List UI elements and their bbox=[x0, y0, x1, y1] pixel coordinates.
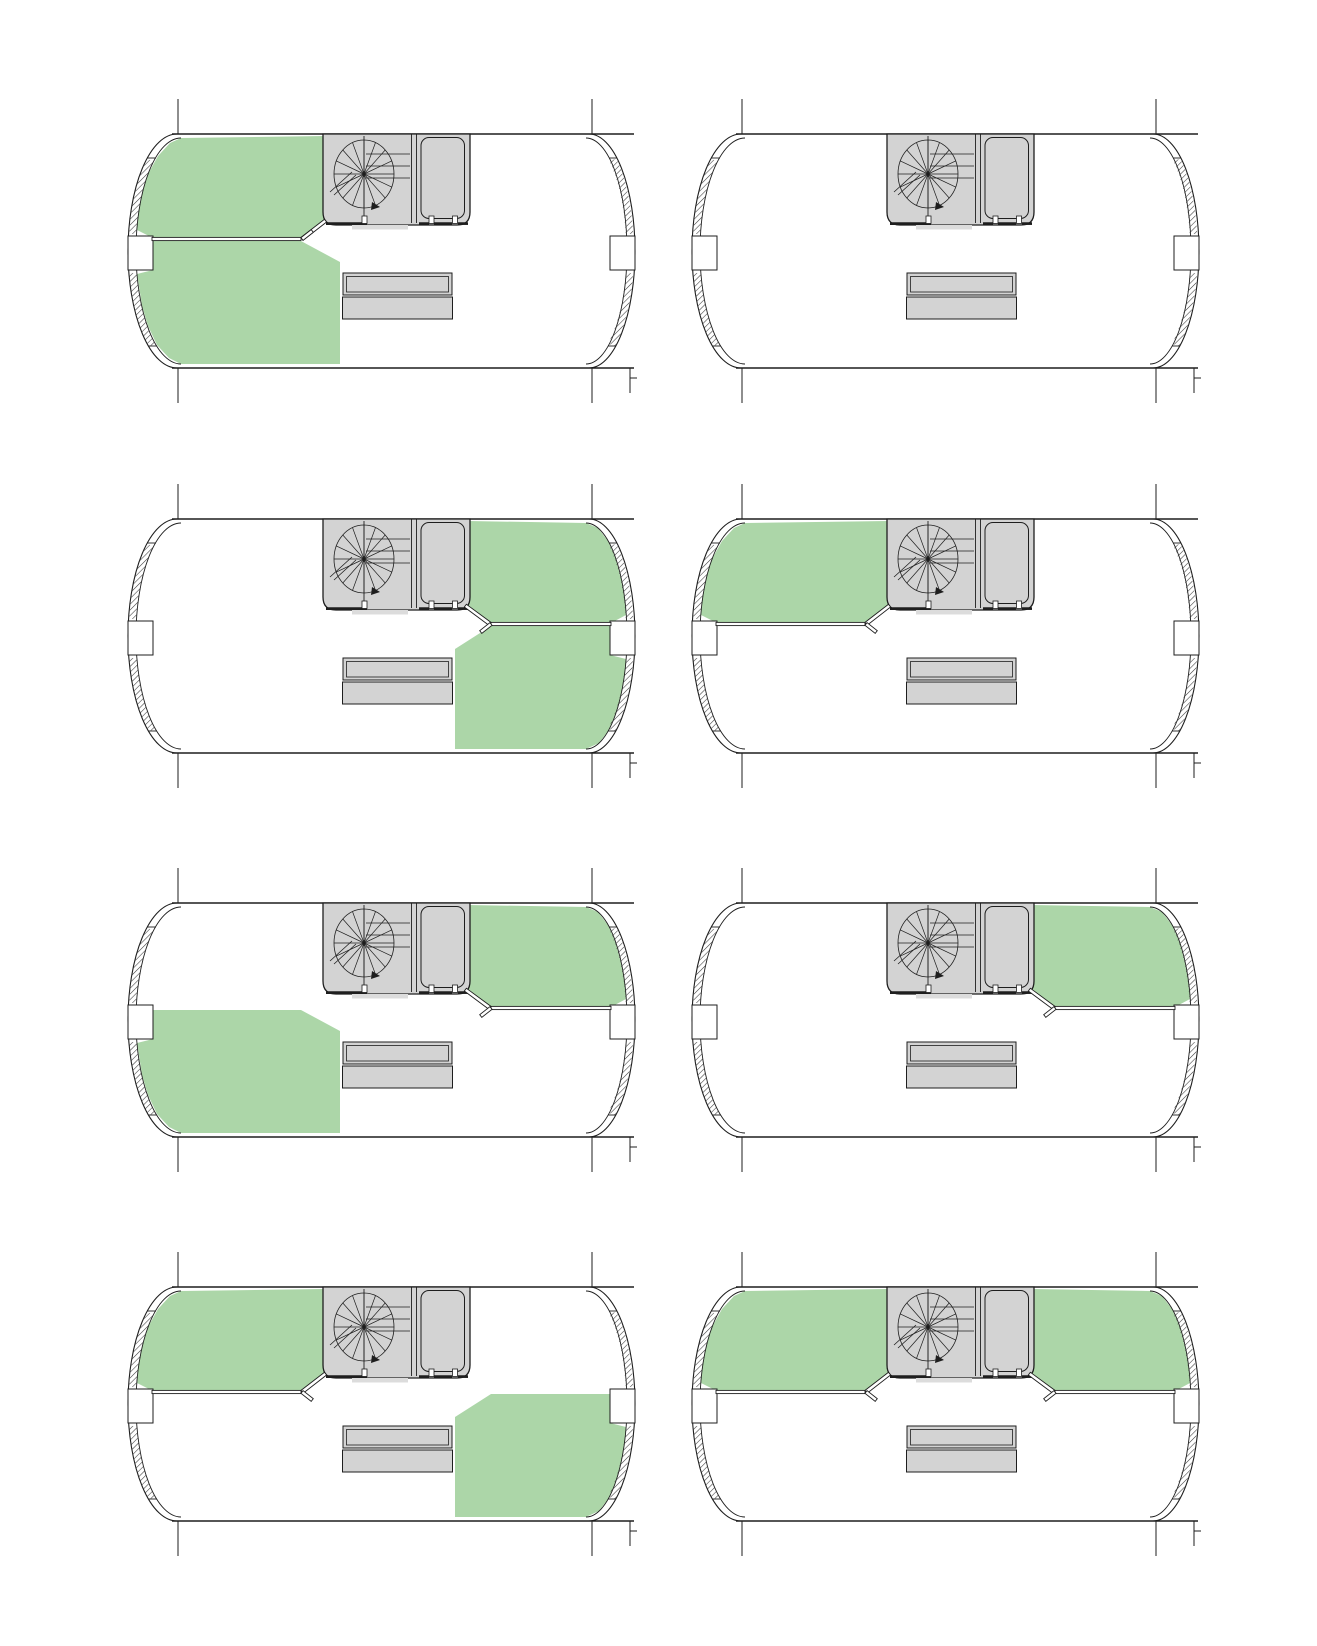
end-wall-panel-left bbox=[692, 236, 717, 270]
floor-plan-sheet bbox=[0, 0, 1317, 1646]
door-leaf-left bbox=[301, 1391, 313, 1402]
door-leaf-right bbox=[480, 1007, 492, 1018]
partition-wall-left bbox=[152, 237, 301, 240]
partition-wall-right bbox=[1055, 1390, 1175, 1393]
door-jamb bbox=[1017, 1369, 1022, 1377]
plans-canvas bbox=[0, 0, 1317, 1646]
highlight-zone-upper-left bbox=[701, 521, 888, 623]
end-wall-panel-right bbox=[1174, 1005, 1199, 1039]
door-jamb bbox=[362, 216, 367, 224]
window-hatch-band bbox=[613, 160, 630, 234]
highlight-zone-upper-right bbox=[1032, 1289, 1190, 1391]
floor-plan-4 bbox=[692, 484, 1201, 788]
end-wall-panel-right bbox=[1174, 621, 1199, 655]
end-wall-panel-left bbox=[128, 621, 153, 655]
table-lower bbox=[907, 1450, 1017, 1472]
door-jamb bbox=[362, 985, 367, 993]
door-jamb bbox=[1017, 216, 1022, 224]
highlight-zone-lower-left bbox=[137, 1010, 340, 1133]
table-lower bbox=[343, 1066, 453, 1088]
door-leaf-right bbox=[1044, 1391, 1056, 1402]
floor-plan-7 bbox=[128, 1252, 637, 1556]
partition-wall-right bbox=[1055, 1006, 1175, 1009]
door-jamb bbox=[993, 601, 998, 609]
door-jamb bbox=[453, 985, 458, 993]
end-wall-panel-left bbox=[692, 1005, 717, 1039]
stair-landing bbox=[352, 994, 408, 999]
window-hatch-band bbox=[612, 273, 630, 345]
table-lower bbox=[907, 1066, 1017, 1088]
end-wall-panel-right bbox=[1174, 236, 1199, 270]
door-jamb bbox=[993, 216, 998, 224]
end-wall-panel-left bbox=[128, 236, 153, 270]
end-wall-panel-left bbox=[692, 1389, 717, 1423]
end-wall-panel-left bbox=[128, 1389, 153, 1423]
door-jamb bbox=[429, 601, 434, 609]
door-jamb bbox=[362, 601, 367, 609]
door-leaf-left bbox=[865, 1391, 877, 1402]
end-wall-panel-right bbox=[610, 1005, 635, 1039]
highlight-zone-upper-right bbox=[1032, 905, 1190, 1007]
end-wall-panel-left bbox=[128, 1005, 153, 1039]
floor-plan-5 bbox=[128, 868, 637, 1172]
door-jamb bbox=[993, 985, 998, 993]
table-lower bbox=[343, 682, 453, 704]
window-hatch-band bbox=[1176, 273, 1194, 345]
door-jamb bbox=[926, 216, 931, 224]
door-jamb bbox=[926, 985, 931, 993]
highlight-zone-upper-right bbox=[468, 521, 626, 623]
end-wall-panel-right bbox=[610, 1389, 635, 1423]
end-wall-panel-right bbox=[1174, 1389, 1199, 1423]
door-leaf-left bbox=[865, 623, 877, 634]
door-jamb bbox=[429, 216, 434, 224]
floor-plan-6 bbox=[692, 868, 1201, 1172]
door-jamb bbox=[429, 985, 434, 993]
door-jamb bbox=[453, 216, 458, 224]
stair-landing bbox=[916, 994, 972, 999]
highlight-zone-lower-left bbox=[137, 241, 340, 364]
stair-landing bbox=[916, 1378, 972, 1383]
door-jamb bbox=[362, 1369, 367, 1377]
window-hatch-band bbox=[613, 1313, 630, 1387]
highlight-zone-upper-left bbox=[701, 1289, 888, 1391]
window-hatch-band bbox=[1176, 1426, 1194, 1498]
partition-wall-left bbox=[716, 622, 865, 625]
door-jamb bbox=[926, 1369, 931, 1377]
window-hatch-band bbox=[1177, 160, 1194, 234]
highlight-zone-lower-right bbox=[455, 1394, 626, 1517]
door-jamb bbox=[429, 1369, 434, 1377]
table-lower bbox=[907, 682, 1017, 704]
door-leaf-right bbox=[1044, 1007, 1056, 1018]
floor-plan-8 bbox=[692, 1252, 1201, 1556]
table-lower bbox=[343, 1450, 453, 1472]
partition-wall-left bbox=[152, 1390, 301, 1393]
highlight-zone-upper-right bbox=[468, 905, 626, 1007]
door-jamb bbox=[1017, 601, 1022, 609]
highlight-zone-upper-left bbox=[137, 1289, 324, 1391]
partition-wall-right bbox=[491, 622, 611, 625]
window-hatch-band bbox=[1177, 545, 1194, 619]
window-hatch-band bbox=[1176, 658, 1194, 730]
window-hatch-band bbox=[1176, 1042, 1194, 1114]
floor-plan-1 bbox=[128, 99, 637, 403]
door-jamb bbox=[926, 601, 931, 609]
highlight-zone-upper-left bbox=[137, 136, 324, 238]
end-wall-panel-right bbox=[610, 621, 635, 655]
partition-wall-left bbox=[716, 1390, 865, 1393]
stair-landing bbox=[352, 610, 408, 615]
table-lower bbox=[907, 297, 1017, 319]
door-jamb bbox=[453, 601, 458, 609]
stair-landing bbox=[916, 225, 972, 230]
highlight-zone-lower-right bbox=[455, 626, 626, 749]
stair-landing bbox=[916, 610, 972, 615]
end-wall-panel-right bbox=[610, 236, 635, 270]
window-hatch-band bbox=[612, 1042, 630, 1114]
table-lower bbox=[343, 297, 453, 319]
stair-landing bbox=[352, 1378, 408, 1383]
door-jamb bbox=[453, 1369, 458, 1377]
end-wall-panel-left bbox=[692, 621, 717, 655]
stair-landing bbox=[352, 225, 408, 230]
partition-wall-right bbox=[491, 1006, 611, 1009]
floor-plan-3 bbox=[128, 484, 637, 788]
door-jamb bbox=[1017, 985, 1022, 993]
floor-plan-2 bbox=[692, 99, 1201, 403]
door-jamb bbox=[993, 1369, 998, 1377]
